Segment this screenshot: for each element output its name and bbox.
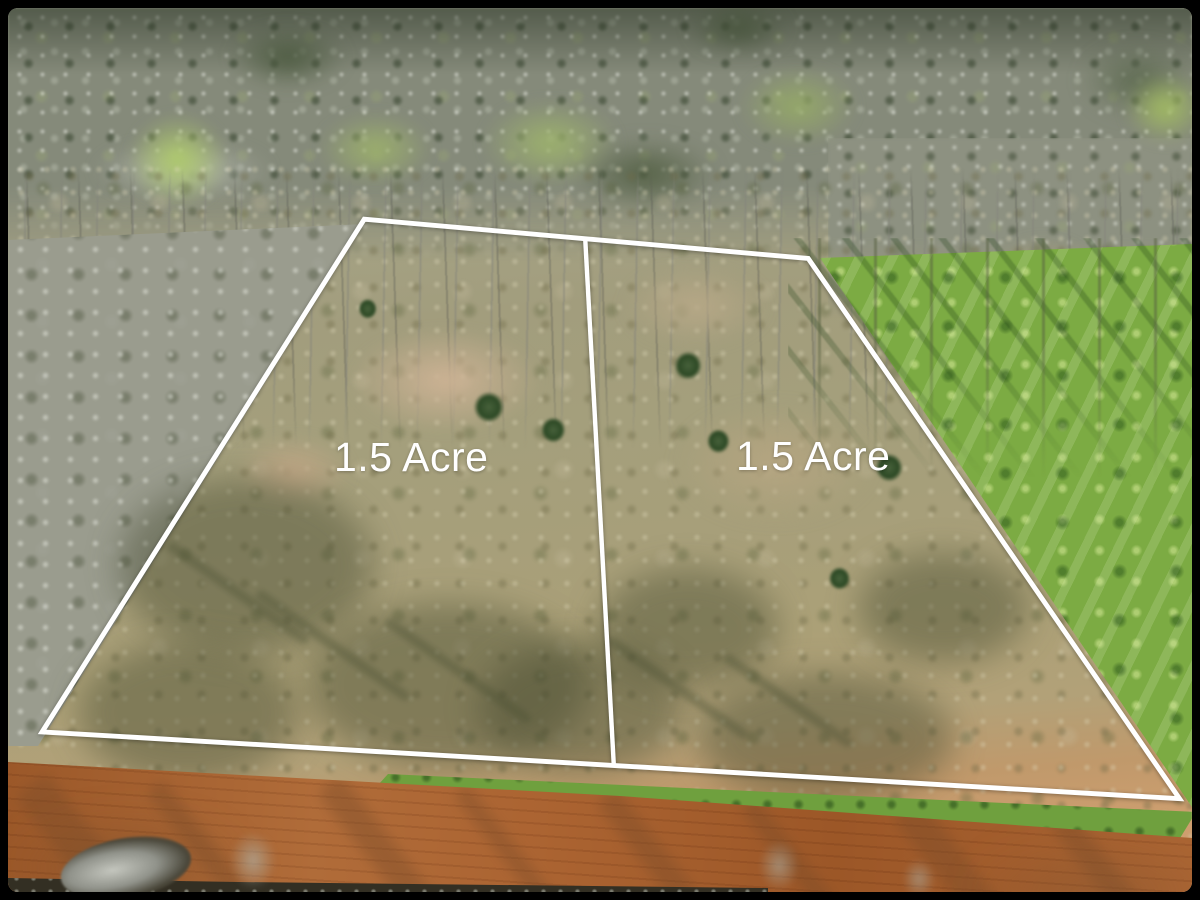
parcel-label-left: 1.5 Acre <box>334 434 488 481</box>
photo-frame: 1.5 Acre 1.5 Acre <box>0 0 1200 900</box>
parcel-boundary-overlay <box>8 8 1192 892</box>
parcel-label-right: 1.5 Acre <box>736 433 890 480</box>
aerial-photo: 1.5 Acre 1.5 Acre <box>8 8 1192 892</box>
parcel-divider-line <box>585 240 613 765</box>
